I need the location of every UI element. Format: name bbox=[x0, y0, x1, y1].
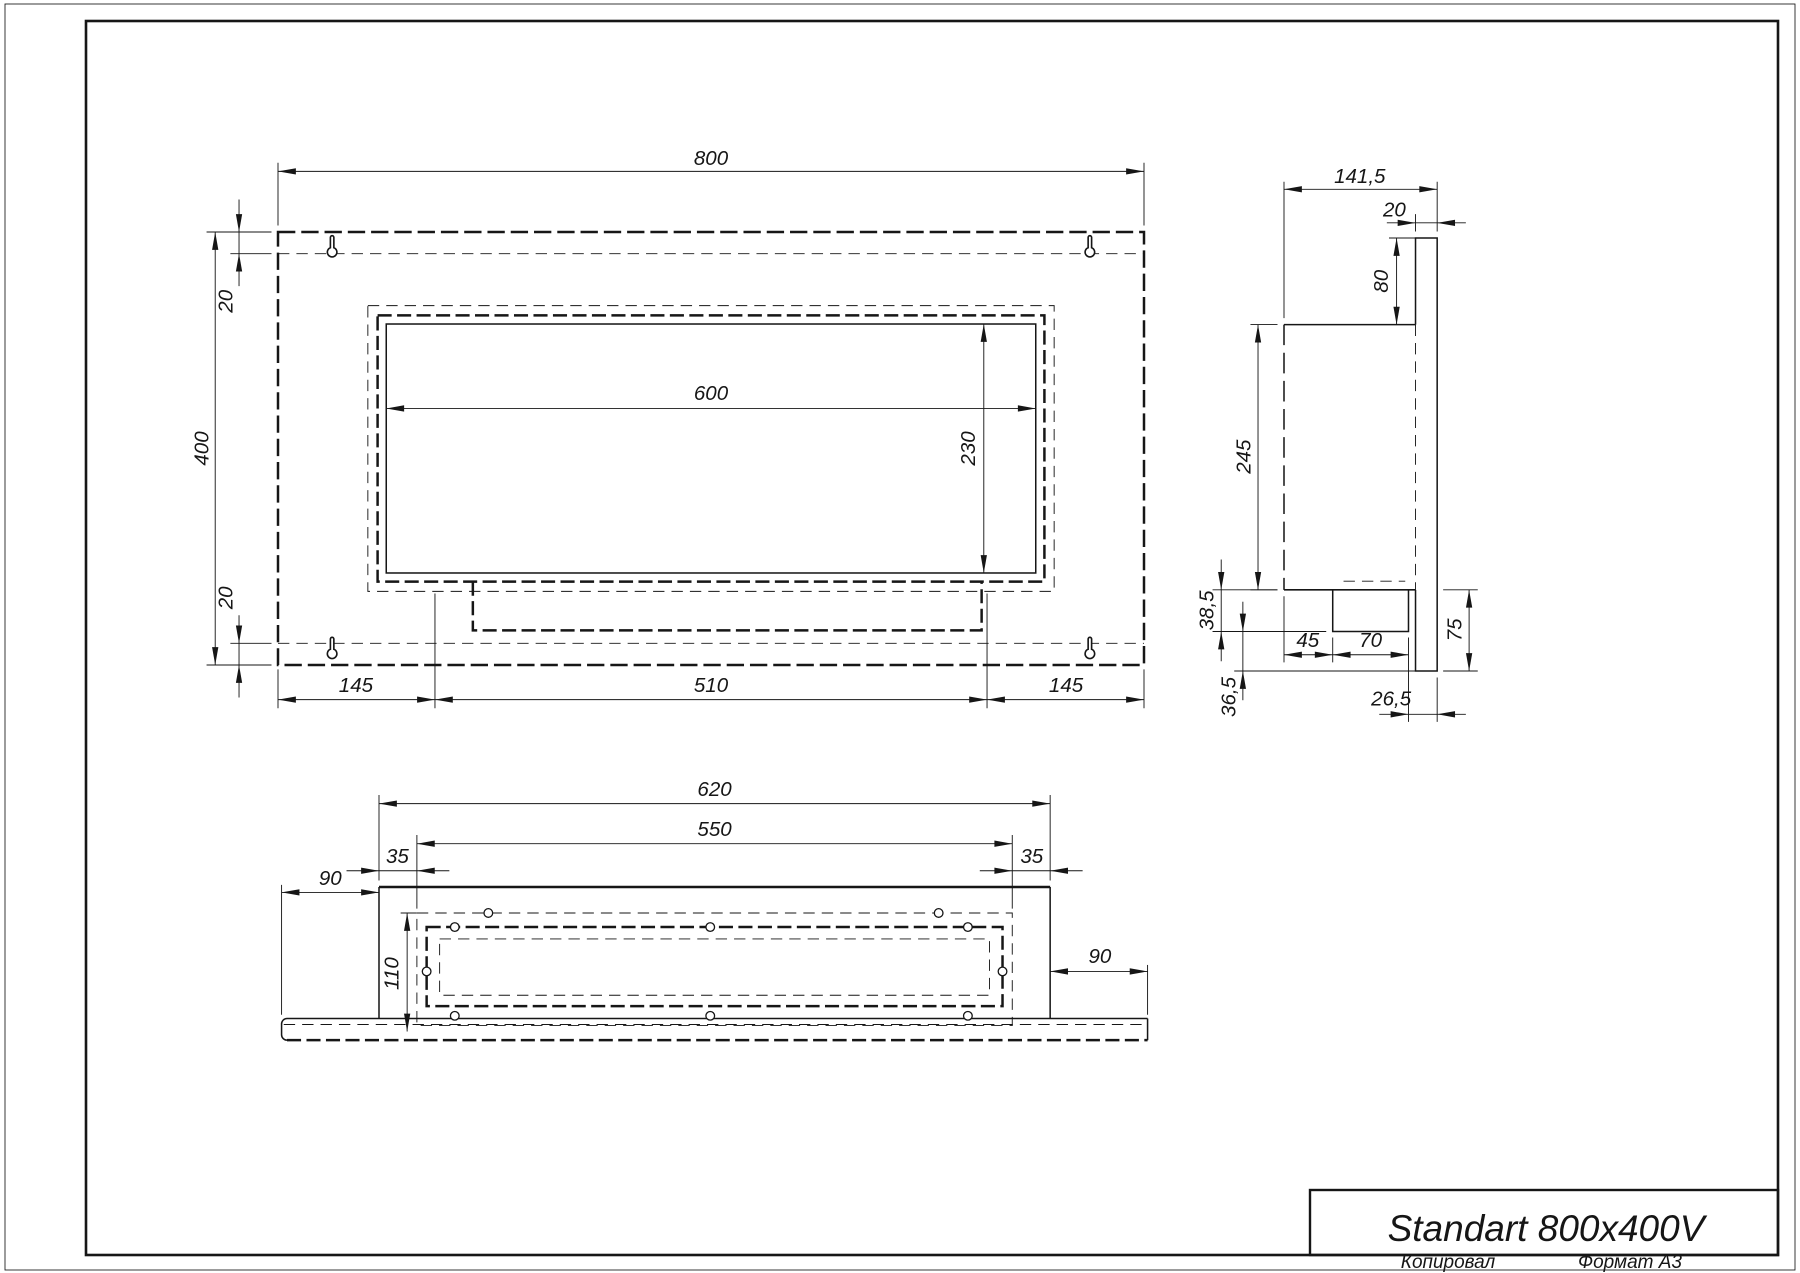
dim-bottom-flange-left-graphic bbox=[282, 885, 379, 1015]
sheet-outer-border bbox=[5, 4, 1795, 1270]
dim-front-opening-height: 230 bbox=[957, 431, 980, 467]
screw-hole bbox=[450, 923, 459, 932]
front-opening-hidden-outer bbox=[368, 306, 1054, 592]
bottom-opening-hidden-outer bbox=[417, 913, 1012, 1026]
drawing-frame bbox=[86, 21, 1778, 1255]
screw-hole bbox=[706, 1011, 715, 1020]
dim-front-width: 800 bbox=[694, 147, 729, 170]
screw-hole bbox=[964, 923, 973, 932]
side-burner-tray bbox=[1333, 590, 1409, 632]
keyhole-slot-top-right bbox=[1085, 236, 1095, 257]
keyhole-slot-bottom-right bbox=[1085, 637, 1095, 658]
screw-hole bbox=[706, 923, 715, 932]
bottom-view: 620 550 35 35 90 bbox=[282, 778, 1148, 1040]
bottom-opening-hidden-inner bbox=[440, 939, 990, 995]
bottom-opening-hidden-mid bbox=[427, 927, 1003, 1006]
dim-front-inset-bottom: 20 bbox=[215, 586, 238, 610]
drawing-sheet: 800 400 20 20 600 230 bbox=[0, 0, 1800, 1273]
dim-side-plate-below-tray: 36,5 bbox=[1217, 676, 1240, 717]
dim-bottom-margin-right: 35 bbox=[1020, 845, 1043, 868]
dim-bottom-opening-width: 550 bbox=[697, 818, 732, 841]
screw-hole bbox=[998, 967, 1007, 976]
dim-bottom-flange-left: 90 bbox=[319, 867, 342, 890]
dim-front-inset-top: 20 bbox=[215, 289, 238, 313]
dim-side-plate-below-tray-graphic bbox=[1234, 602, 1415, 701]
dim-front-opening-width: 600 bbox=[694, 382, 729, 405]
front-opening bbox=[386, 324, 1036, 573]
front-outer-contour bbox=[278, 232, 1144, 665]
keyhole-slot-top-left bbox=[327, 236, 337, 257]
footer-format-label: Формат А3 bbox=[1578, 1252, 1682, 1273]
dim-front-bottom-left: 145 bbox=[339, 674, 374, 697]
dim-side-tray-width: 70 bbox=[1359, 629, 1382, 652]
dim-front-height: 400 bbox=[191, 431, 214, 466]
dim-front-bottom-center: 510 bbox=[694, 674, 729, 697]
screw-hole bbox=[422, 967, 431, 976]
dim-side-box-height: 245 bbox=[1232, 439, 1255, 475]
dim-front-inset-bottom-graphic bbox=[230, 615, 271, 697]
front-burner-tray-hidden bbox=[473, 582, 982, 631]
dim-front-width-graphic bbox=[278, 163, 1144, 226]
dim-side-plate-above-graphic bbox=[1389, 238, 1416, 325]
dim-side-width: 141,5 bbox=[1334, 165, 1386, 188]
keyhole-slot-bottom-left bbox=[327, 637, 337, 658]
dim-bottom-width: 620 bbox=[697, 778, 732, 801]
dim-side-plate-above: 80 bbox=[1370, 269, 1393, 292]
dim-bottom-flange-right-graphic bbox=[1050, 965, 1147, 1015]
front-opening-hidden-mid bbox=[378, 315, 1045, 581]
screw-hole bbox=[484, 909, 493, 918]
dim-side-width-graphic bbox=[1284, 182, 1437, 318]
footer-copied-label: Копировал bbox=[1401, 1252, 1496, 1273]
side-view: 141,5 20 80 245 38,5 bbox=[1196, 165, 1478, 722]
dim-front-bottom-right: 145 bbox=[1049, 674, 1084, 697]
screw-hole bbox=[450, 1011, 459, 1020]
front-view: 800 400 20 20 600 230 bbox=[191, 147, 1144, 708]
screw-hole bbox=[964, 1011, 973, 1020]
dim-bottom-margin-left: 35 bbox=[386, 845, 409, 868]
side-back-plate bbox=[1416, 238, 1438, 671]
dim-side-tray-to-back: 26,5 bbox=[1370, 688, 1412, 711]
dim-bottom-flange-right: 90 bbox=[1089, 945, 1112, 968]
dim-bottom-depth: 110 bbox=[380, 957, 403, 990]
bottom-flange-left-end bbox=[282, 1019, 287, 1041]
dim-side-plate-thickness: 20 bbox=[1382, 198, 1406, 221]
dim-side-tray-depth: 38,5 bbox=[1196, 590, 1219, 631]
title-block: Standart 800x400V bbox=[1310, 1190, 1778, 1255]
dim-side-tray-offset: 45 bbox=[1296, 629, 1319, 652]
screw-hole bbox=[934, 909, 943, 918]
dim-bottom-opening-width-graphic bbox=[417, 835, 1012, 909]
dim-front-inset-top-graphic bbox=[230, 200, 271, 287]
title-block-title: Standart 800x400V bbox=[1388, 1208, 1708, 1249]
dim-side-plate-below-box: 75 bbox=[1444, 618, 1467, 641]
